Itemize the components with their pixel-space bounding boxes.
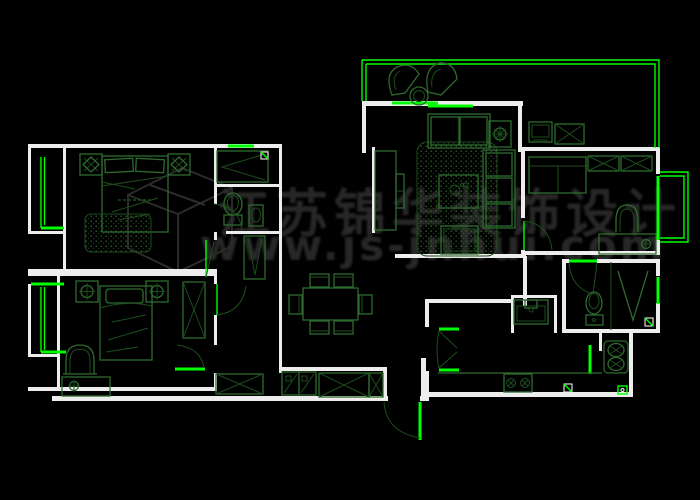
floor-drain xyxy=(645,318,653,326)
wall-cabinet-x xyxy=(555,124,584,144)
bay-window-master xyxy=(41,157,64,228)
nightstand-lamp xyxy=(168,154,190,175)
dining-table xyxy=(303,288,358,320)
kitchen xyxy=(437,300,627,394)
folding-door xyxy=(437,329,459,370)
nightstand-lamp xyxy=(146,281,168,302)
nightstand-lamp xyxy=(76,281,98,302)
bedroom2-door-se xyxy=(175,345,205,369)
dining-set xyxy=(289,274,372,334)
floor-plan-stage: 江苏锦华装饰设计 www.js-jnhui.com xyxy=(0,0,700,500)
rug xyxy=(85,214,151,252)
monitor xyxy=(529,122,552,142)
desk-lamp xyxy=(62,377,110,396)
wardrobe-x xyxy=(183,282,205,338)
gas-stove xyxy=(504,374,532,392)
cabinet-x-small xyxy=(369,373,383,397)
hall-cabinets xyxy=(216,372,383,397)
single-bed xyxy=(100,286,152,360)
rug xyxy=(417,142,497,256)
cabinet-x xyxy=(216,374,263,394)
armchair xyxy=(63,345,97,374)
second-bedroom xyxy=(62,281,246,396)
bathroom xyxy=(569,261,658,330)
double-basin-sink xyxy=(604,341,628,373)
bay-window-bedroom2 xyxy=(31,284,66,352)
shower-mark xyxy=(618,271,648,320)
fan-chair-left xyxy=(389,65,419,95)
shoe-cabinet xyxy=(282,372,316,395)
laundry xyxy=(590,341,628,374)
entry-door xyxy=(384,402,420,440)
floor-drain xyxy=(564,384,572,392)
nightstand-lamp xyxy=(80,154,102,175)
kitchen-sink xyxy=(514,300,548,324)
toilet xyxy=(586,292,603,325)
floor-plan: 江苏锦华装饰设计 www.js-jnhui.com xyxy=(0,0,700,500)
master-bedroom xyxy=(80,154,190,252)
wardrobe-v xyxy=(217,151,268,182)
fan-chair-right xyxy=(427,63,457,95)
cabinet-x xyxy=(319,373,369,397)
wall-cabinet-x xyxy=(588,156,652,171)
bedroom2-door-ne xyxy=(217,284,246,315)
